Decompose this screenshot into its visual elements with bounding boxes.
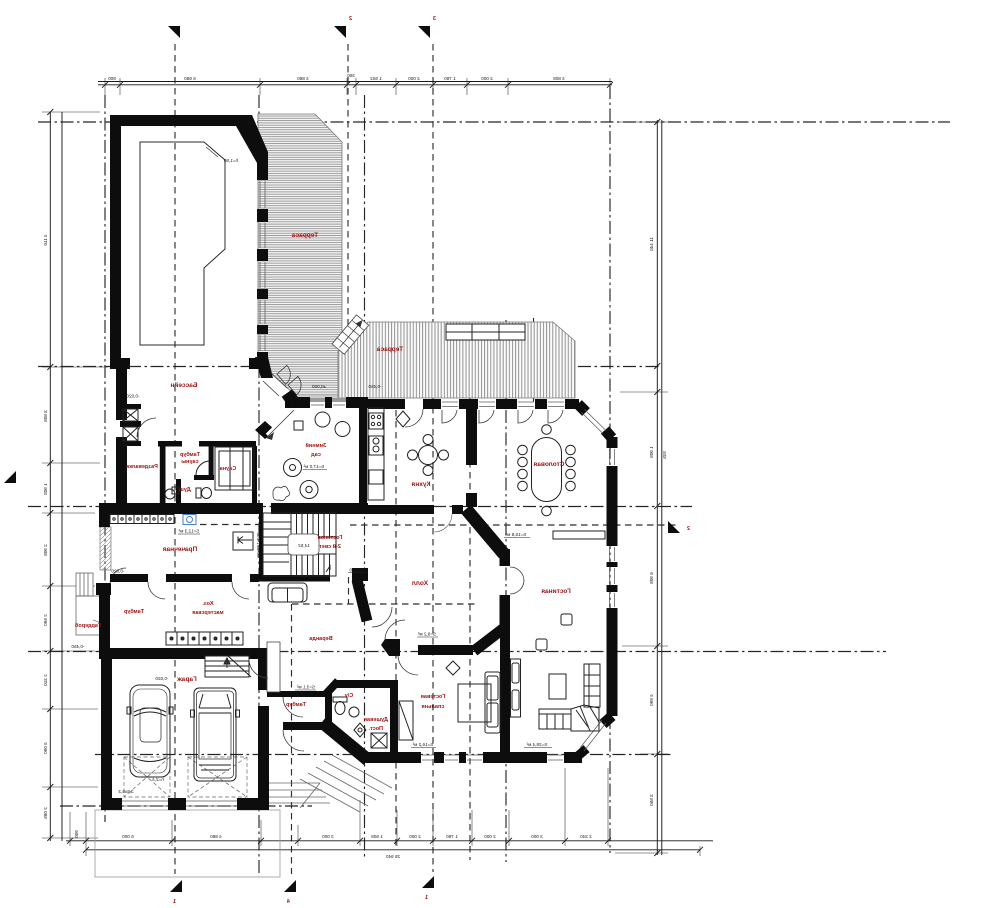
svg-text:Гараж: Гараж xyxy=(177,676,197,683)
svg-text:Сауна: Сауна xyxy=(219,466,236,472)
svg-text:915: 915 xyxy=(662,451,667,459)
svg-text:300: 300 xyxy=(347,73,355,78)
svg-text:Зимний: Зимний xyxy=(306,442,327,449)
svg-text:3: 3 xyxy=(433,16,436,22)
svg-text:3 000: 3 000 xyxy=(531,834,543,839)
svg-text:Гостиная: Гостиная xyxy=(541,588,571,595)
svg-text:-0,450: -0,450 xyxy=(368,384,381,389)
svg-text:S=28,4 м²: S=28,4 м² xyxy=(526,742,547,747)
svg-text:4 808: 4 808 xyxy=(553,76,565,81)
svg-text:4 880: 4 880 xyxy=(297,76,309,81)
svg-text:2 000: 2 000 xyxy=(481,76,493,81)
svg-text:1: 1 xyxy=(425,895,428,901)
svg-text:4 890: 4 890 xyxy=(649,694,654,706)
svg-text:Терраса: Терраса xyxy=(377,346,404,353)
svg-text:900: 900 xyxy=(108,76,116,81)
svg-text:25 940: 25 940 xyxy=(386,854,400,859)
svg-text:-0,450: -0,450 xyxy=(71,644,84,649)
svg-text:1 908: 1 908 xyxy=(649,446,654,458)
svg-text:S=3,1 м²: S=3,1 м² xyxy=(296,685,315,690)
svg-text:3,5x5,3: 3,5x5,3 xyxy=(118,789,134,794)
svg-text:1 508: 1 508 xyxy=(371,834,383,839)
svg-text:сад: сад xyxy=(311,452,321,458)
svg-text:6 000: 6 000 xyxy=(122,834,134,839)
svg-text:±0,000: ±0,000 xyxy=(312,384,326,389)
svg-text:Холл: Холл xyxy=(412,580,428,587)
svg-text:4 110: 4 110 xyxy=(43,234,48,246)
svg-text:Раздевалка: Раздевалка xyxy=(125,464,158,470)
svg-text:Столовая: Столовая xyxy=(533,461,564,468)
svg-text:3 550: 3 550 xyxy=(649,794,654,806)
svg-text:Прачечная: Прачечная xyxy=(163,546,198,553)
svg-text:2 000: 2 000 xyxy=(409,834,421,839)
svg-text:4 880: 4 880 xyxy=(210,834,222,839)
svg-text:Гардероб: Гардероб xyxy=(74,622,101,629)
svg-text:2 908: 2 908 xyxy=(43,544,48,556)
svg-text:2 590: 2 590 xyxy=(43,614,48,626)
svg-text:2 310: 2 310 xyxy=(43,674,48,686)
svg-text:2: 2 xyxy=(687,526,690,532)
svg-text:Душ: Душ xyxy=(179,487,191,493)
svg-text:сауны: сауны xyxy=(181,459,199,465)
svg-text:14,52: 14,52 xyxy=(298,543,310,548)
svg-text:Душевая: Душевая xyxy=(364,717,388,723)
svg-text:250x170x20: 250x170x20 xyxy=(256,532,261,557)
svg-text:1 908: 1 908 xyxy=(43,483,48,495)
svg-text:Гостиная: Гостиная xyxy=(318,535,343,541)
svg-text:Терраса: Терраса xyxy=(292,232,319,239)
svg-text:2 000: 2 000 xyxy=(408,76,420,81)
svg-text:-0,020: -0,020 xyxy=(126,394,139,399)
svg-text:Тамбур: Тамбур xyxy=(179,451,200,458)
svg-text:2: 2 xyxy=(349,16,352,22)
svg-text:S=12,3 м²: S=12,3 м² xyxy=(178,529,199,534)
svg-text:2 085: 2 085 xyxy=(43,807,48,819)
svg-text:S=9,2 м²: S=9,2 м² xyxy=(417,632,436,637)
svg-text:Тамбур: Тамбур xyxy=(285,701,306,708)
svg-text:Тамбур: Тамбур xyxy=(123,608,144,615)
svg-text:-0,020: -0,020 xyxy=(155,676,168,681)
svg-text:6 680: 6 680 xyxy=(184,76,196,81)
svg-text:1: 1 xyxy=(173,899,176,905)
svg-text:h=2,4: h=2,4 xyxy=(152,777,164,782)
svg-text:2-й свет: 2-й свет xyxy=(319,543,341,550)
svg-text:S=17,0 м²: S=17,0 м² xyxy=(303,464,324,469)
svg-text:Веранда: Веранда xyxy=(308,636,332,642)
svg-text:С/у: С/у xyxy=(344,693,354,699)
svg-text:11 440: 11 440 xyxy=(649,237,654,251)
svg-text:Гостевая: Гостевая xyxy=(421,694,446,700)
svg-text:Бассейн: Бассейн xyxy=(170,381,197,389)
svg-text:мастерская: мастерская xyxy=(192,610,223,616)
svg-text:2 340: 2 340 xyxy=(580,834,592,839)
svg-text:h=1,50: h=1,50 xyxy=(223,158,238,163)
svg-text:3 090: 3 090 xyxy=(43,742,48,754)
svg-text:Хоз.: Хоз. xyxy=(202,601,214,607)
svg-text:3 808: 3 808 xyxy=(43,410,48,422)
svg-text:Пост.: Пост. xyxy=(369,726,384,732)
svg-text:1 502: 1 502 xyxy=(370,76,382,81)
svg-text:1 780: 1 780 xyxy=(446,834,458,839)
svg-text:1 780: 1 780 xyxy=(444,76,456,81)
svg-text:3 000: 3 000 xyxy=(322,834,334,839)
svg-text:2 000: 2 000 xyxy=(484,834,496,839)
svg-text:6 908: 6 908 xyxy=(649,572,654,584)
svg-text:-0,020: -0,020 xyxy=(111,569,124,574)
svg-text:S=16,2 м²: S=16,2 м² xyxy=(412,742,433,747)
svg-text:Кухня: Кухня xyxy=(411,481,430,488)
svg-text:900: 900 xyxy=(74,830,79,838)
svg-text:спальня: спальня xyxy=(422,704,445,710)
svg-text:S=15,8 м²: S=15,8 м² xyxy=(505,532,526,537)
svg-text:-0,450: -0,450 xyxy=(349,568,362,573)
